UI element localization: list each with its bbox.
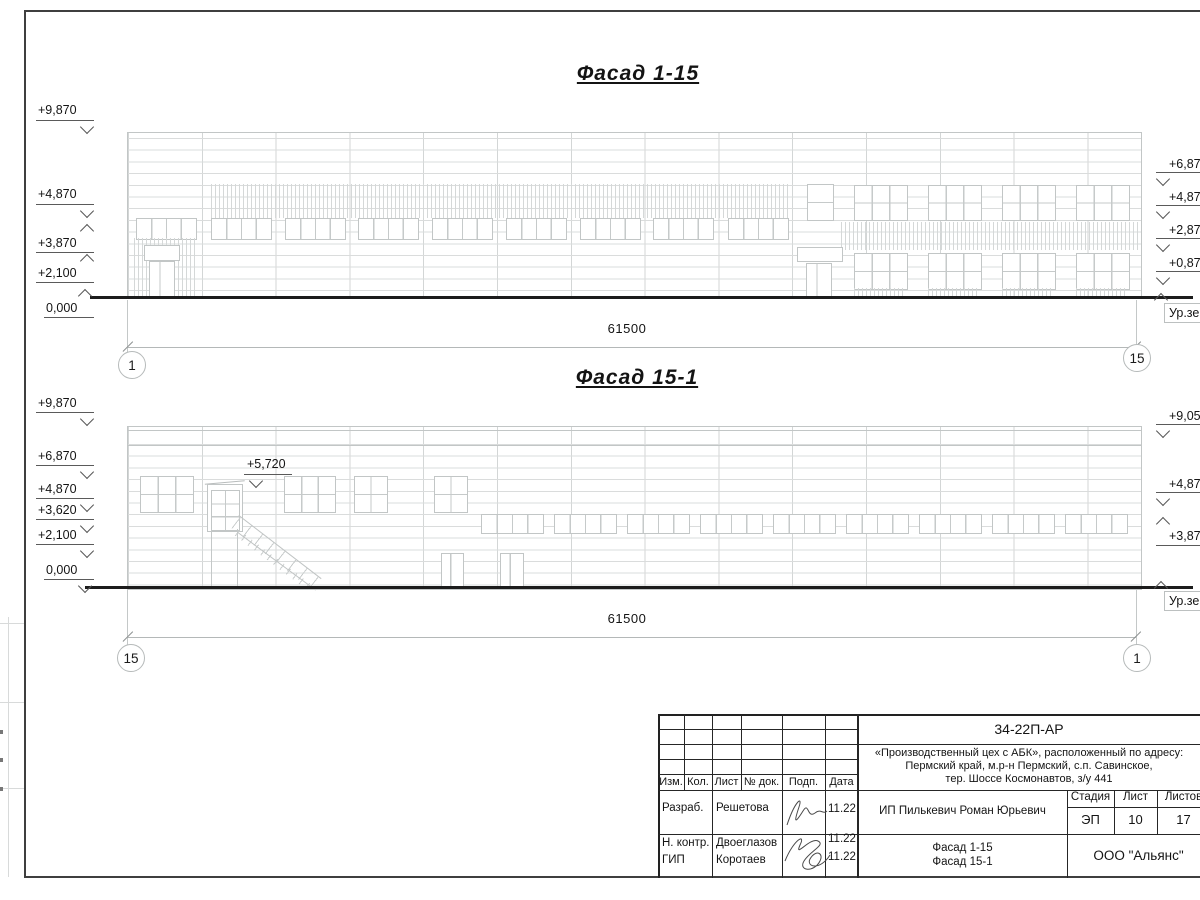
elevation-mark: +9,05 <box>1169 409 1200 423</box>
titleblock-line <box>658 834 1200 835</box>
sheet-frame-top <box>24 10 1200 12</box>
drawing-sheet: { "sheet": { "facade_top": { "title": "Ф… <box>0 0 1200 900</box>
titleblock-line <box>712 714 713 878</box>
window <box>432 218 493 240</box>
mark-shelf <box>1156 545 1200 546</box>
col-header-podp: Подп. <box>782 776 825 788</box>
window <box>773 514 836 534</box>
elevation-mark: 0,000 <box>46 301 77 315</box>
entrance-door <box>806 263 832 299</box>
margin-text-fragment <box>0 730 3 734</box>
elevation-mark: +4,870 <box>38 187 77 201</box>
stair-stringer <box>237 532 316 591</box>
project-address-line: тер. Шоссе Космонавтов, з/у 441 <box>858 773 1200 785</box>
titleblock-line <box>658 759 858 760</box>
col-header-data: Дата <box>825 776 858 788</box>
level-arrow-icon <box>80 544 94 558</box>
window <box>140 476 194 513</box>
margin-line <box>0 623 24 624</box>
elevation-mark: +3,620 <box>38 503 77 517</box>
elevation-mark: +4,87 <box>1169 190 1200 204</box>
level-arrow-icon <box>80 224 94 238</box>
window <box>354 476 388 513</box>
col-header-kol: Кол. <box>684 776 712 788</box>
titleblock-border-left <box>658 714 660 878</box>
stair-window <box>807 184 834 221</box>
margin-line <box>0 788 24 789</box>
margin-text-fragment <box>0 758 3 762</box>
drawing-name-line: Фасад 1-15 <box>858 842 1067 854</box>
level-arrow-icon <box>1156 238 1170 252</box>
level-arrow-icon <box>80 519 94 533</box>
level-arrow-icon <box>1156 205 1170 219</box>
mark-shelf <box>44 317 94 318</box>
level-arrow-icon <box>1156 271 1170 285</box>
facade-15-1-title: Фасад 15-1 <box>572 366 702 390</box>
level-arrow-icon <box>80 120 94 134</box>
elevation-mark: +2,100 <box>38 266 77 280</box>
mark-shelf <box>36 282 94 283</box>
door <box>441 553 464 590</box>
level-arrow-icon <box>1156 517 1170 531</box>
window <box>1076 185 1130 221</box>
window <box>1076 253 1130 290</box>
dimension-line <box>128 347 1136 348</box>
window <box>358 218 419 240</box>
extension-line <box>1136 300 1137 346</box>
window <box>580 218 641 240</box>
elevation-mark: +2,100 <box>38 528 77 542</box>
level-arrow-icon <box>80 412 94 426</box>
elevation-mark: +5,720 <box>247 457 286 471</box>
level-arrow-icon <box>80 254 94 268</box>
elevation-mark: +3,870 <box>38 236 77 250</box>
grid-axis-bubble: 1 <box>1123 644 1151 672</box>
window <box>481 514 544 534</box>
elevation-mark: +9,870 <box>38 396 77 410</box>
window <box>992 514 1055 534</box>
elevation-mark: 0,000 <box>46 563 77 577</box>
window <box>928 185 982 221</box>
window <box>627 514 690 534</box>
ground-level-label: Ур.зе <box>1169 594 1199 608</box>
sheet-header: Лист <box>1114 791 1157 803</box>
elevation-mark: +2,87 <box>1169 223 1200 237</box>
sheet-frame-left <box>24 10 26 878</box>
stair-post <box>211 529 212 588</box>
elevation-mark: +0,87 <box>1169 256 1200 270</box>
window <box>1002 253 1056 290</box>
window <box>506 218 567 240</box>
project-address-line: «Производственный цех с АБК», расположен… <box>858 747 1200 759</box>
spandrel-hatch <box>841 222 1140 250</box>
grid-axis-bubble: 15 <box>1123 344 1151 372</box>
elevation-mark: +9,870 <box>38 103 77 117</box>
window <box>284 476 336 513</box>
col-header-list: Лист <box>712 776 741 788</box>
window <box>211 218 272 240</box>
person-name: Решетова <box>716 802 769 814</box>
sheets-total-header: Листов <box>1157 791 1200 803</box>
drawing-name-line: Фасад 15-1 <box>858 856 1067 868</box>
elevation-mark: +4,870 <box>38 482 77 496</box>
titleblock-line <box>1067 807 1200 808</box>
window <box>700 514 763 534</box>
person-name: Коротаев <box>716 854 766 866</box>
window <box>434 476 468 513</box>
sheet-number: 10 <box>1114 812 1157 827</box>
dimension-value: 61500 <box>597 611 657 626</box>
sheet-frame-bottom <box>24 876 1200 878</box>
stage-header: Стадия <box>1067 791 1114 803</box>
client-name: ИП Пилькевич Роман Юрьевич <box>858 805 1067 817</box>
ground-line <box>90 296 1193 299</box>
elevation-mark: +4,87 <box>1169 477 1200 491</box>
grid-axis-bubble: 1 <box>118 351 146 379</box>
entrance-canopy <box>144 245 180 261</box>
stair-balusters <box>231 517 319 589</box>
project-address-line: Пермский край, м.р-н Пермский, с.п. Сави… <box>858 760 1200 772</box>
level-arrow-icon <box>78 579 92 593</box>
signature <box>783 793 828 831</box>
role-label: Н. контр. <box>662 837 709 849</box>
facade-1-15-title: Фасад 1-15 <box>573 62 703 86</box>
level-arrow-icon <box>1156 492 1170 506</box>
window <box>285 218 346 240</box>
level-arrow-icon <box>1156 172 1170 186</box>
role-label: ГИП <box>662 854 685 866</box>
level-arrow-icon <box>80 465 94 479</box>
mark-shelf <box>36 252 94 253</box>
level-arrow-icon <box>80 498 94 512</box>
facade-15-1-elevation <box>127 426 1142 590</box>
parapet-band <box>128 430 1141 446</box>
stage-value: ЭП <box>1067 812 1114 827</box>
ground-level-label: Ур.зе <box>1169 306 1199 320</box>
cladding-hatch <box>211 184 788 218</box>
elevation-mark: +3,87 <box>1169 529 1200 543</box>
elevation-mark: +6,87 <box>1169 157 1200 171</box>
level-arrow-icon <box>1156 424 1170 438</box>
titleblock-line <box>658 774 858 775</box>
window <box>653 218 714 240</box>
company-name: ООО "Альянс" <box>1067 848 1200 863</box>
col-header-ndok: № док. <box>741 776 782 788</box>
window <box>854 185 908 221</box>
entrance-door <box>149 261 175 298</box>
window <box>854 253 908 290</box>
margin-line <box>0 702 24 703</box>
date-value: 11.22 <box>828 803 856 815</box>
signature <box>780 831 835 876</box>
titleblock-border-top <box>658 714 1200 716</box>
col-header-izm: Изм. <box>658 776 684 788</box>
dimension-value: 61500 <box>597 321 657 336</box>
margin-text-fragment <box>0 787 3 791</box>
entrance-canopy <box>797 247 843 262</box>
mark-shelf <box>244 474 292 475</box>
project-code: 34-22П-АР <box>858 721 1200 737</box>
role-label: Разраб. <box>662 802 703 814</box>
level-arrow-icon <box>78 289 92 303</box>
ground-line <box>85 586 1193 589</box>
window <box>136 218 197 240</box>
margin-line <box>8 617 9 877</box>
dimension-line <box>128 637 1136 638</box>
window <box>728 218 789 240</box>
sheets-total: 17 <box>1157 812 1200 827</box>
window <box>1065 514 1128 534</box>
grid-axis-bubble: 15 <box>117 644 145 672</box>
elevation-mark: +6,870 <box>38 449 77 463</box>
window <box>554 514 617 534</box>
window <box>1002 185 1056 221</box>
person-name: Двоеглазов <box>716 837 777 849</box>
titleblock-line <box>658 744 1200 745</box>
window <box>846 514 909 534</box>
level-arrow-icon <box>80 204 94 218</box>
window <box>928 253 982 290</box>
titleblock-line <box>658 729 858 730</box>
window <box>919 514 982 534</box>
facade-1-15-elevation <box>127 132 1142 299</box>
door <box>500 553 524 590</box>
